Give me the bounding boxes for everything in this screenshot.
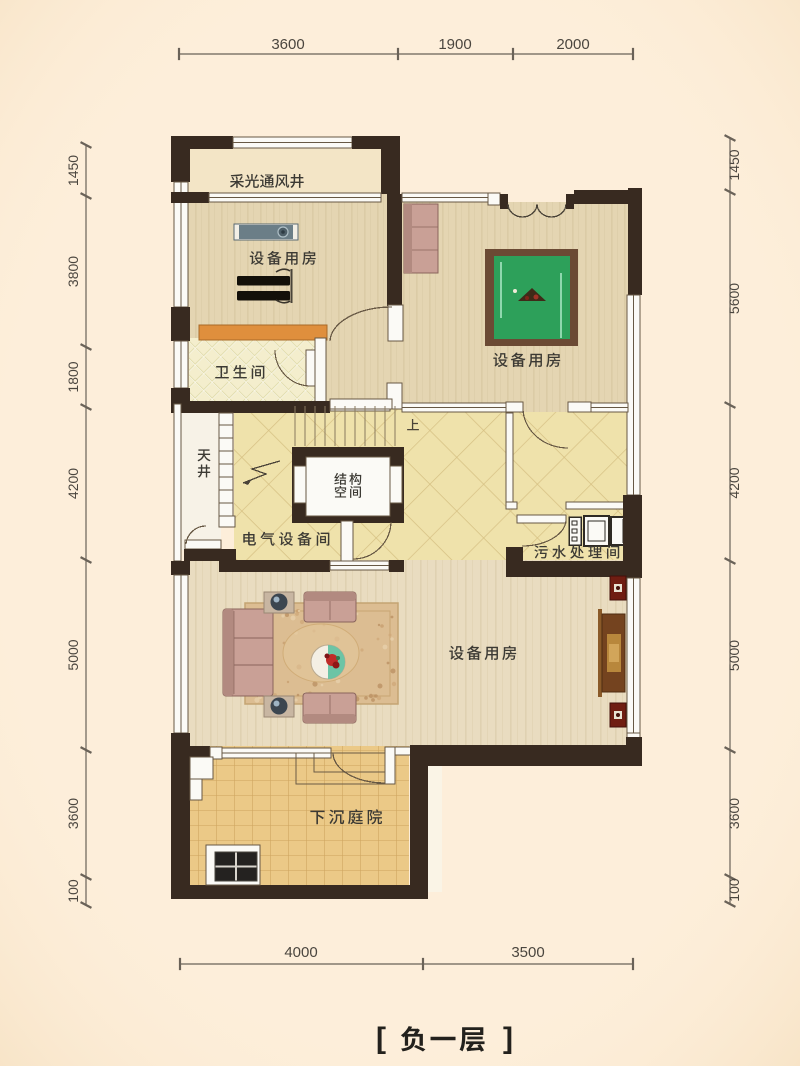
svg-text:100: 100: [726, 878, 742, 902]
svg-text:3500: 3500: [511, 944, 544, 961]
svg-text:[: [: [376, 1022, 386, 1055]
svg-text:3800: 3800: [65, 256, 81, 287]
svg-text:5000: 5000: [65, 639, 81, 670]
svg-text:3600: 3600: [271, 36, 304, 53]
svg-text:3600: 3600: [726, 798, 742, 829]
svg-text:1800: 1800: [65, 361, 81, 392]
svg-text:100: 100: [65, 879, 81, 903]
svg-text:2000: 2000: [556, 36, 589, 53]
svg-text:4000: 4000: [284, 944, 317, 961]
svg-text:1450: 1450: [65, 155, 81, 186]
svg-text:1450: 1450: [726, 149, 742, 180]
svg-text:5600: 5600: [726, 283, 742, 314]
svg-text:]: ]: [503, 1022, 513, 1055]
svg-text:3600: 3600: [65, 798, 81, 829]
svg-text:1900: 1900: [438, 36, 471, 53]
svg-text:4200: 4200: [726, 467, 742, 498]
svg-text:4200: 4200: [65, 468, 81, 499]
svg-text:5000: 5000: [726, 640, 742, 671]
